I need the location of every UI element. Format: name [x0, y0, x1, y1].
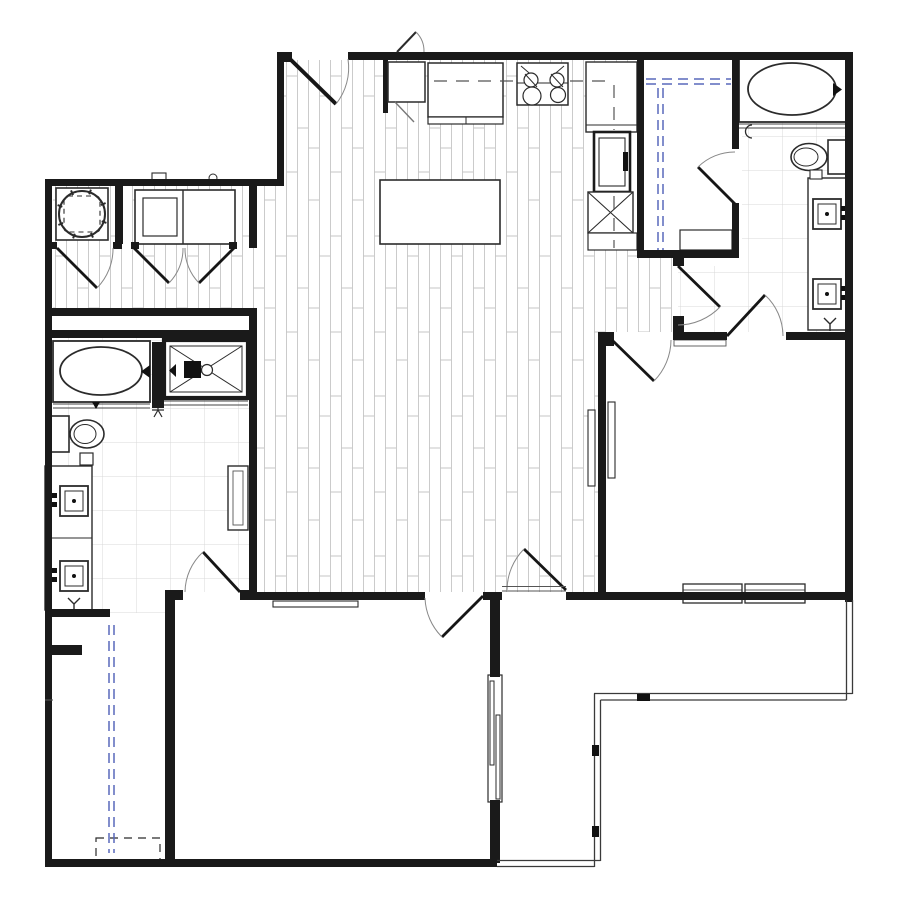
room-kitchen — [380, 60, 637, 250]
room-bedroom-1 — [175, 600, 490, 859]
wall-left-exterior — [45, 179, 52, 867]
wall-bed1-right-lower — [490, 800, 500, 863]
wall-top-main — [348, 52, 853, 60]
wall-bath-east-bottom — [786, 332, 853, 340]
wall-wing-top — [45, 179, 284, 186]
exterior-closet-door-arc — [416, 32, 424, 52]
wall-bed1-left — [165, 590, 175, 863]
room-closet-sw — [53, 617, 165, 859]
room-bedroom-2 — [606, 340, 845, 592]
floor-plan-svg — [0, 0, 900, 900]
room-hallway — [640, 258, 678, 332]
room-bath-west — [53, 338, 249, 593]
room-closet-ne — [644, 60, 732, 250]
room-patio — [500, 600, 853, 867]
room-laundry — [53, 186, 253, 246]
wall-bump — [152, 173, 166, 180]
wall-living-bed2 — [598, 332, 606, 592]
wall-hall-band-upper — [45, 308, 253, 316]
wall-kitchen-closet — [637, 56, 644, 258]
exterior-closet-door-leaf — [397, 32, 416, 52]
slider-panel-1 — [490, 681, 494, 765]
wall-bed2-bottom — [566, 592, 853, 600]
wall-bottom-exterior — [45, 859, 497, 867]
slider-panel-2 — [496, 715, 500, 799]
living-wall-bar — [588, 410, 595, 486]
floor-plan-page — [0, 0, 900, 900]
wall-bathwest-bottom-stub — [45, 609, 110, 617]
wall-living-bottom-west — [257, 592, 425, 600]
wall-bed2-hall — [673, 332, 727, 340]
wall-hall-band-lower — [45, 330, 253, 338]
wall-right-exterior — [845, 52, 853, 602]
wall-bathwest-living — [249, 308, 257, 595]
wall-bed1-right-upper — [490, 596, 500, 677]
